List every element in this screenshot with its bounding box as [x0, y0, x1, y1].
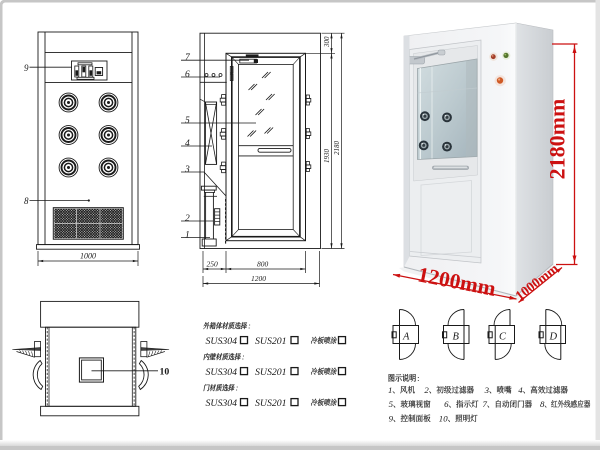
svg-text:8: 8: [24, 196, 29, 206]
svg-text:SUS201: SUS201: [255, 336, 287, 347]
svg-text:9: 9: [389, 413, 394, 423]
svg-text:SUS201: SUS201: [255, 398, 287, 409]
svg-text:4: 4: [185, 139, 190, 149]
svg-text:2180: 2180: [333, 141, 341, 156]
svg-text:5: 5: [185, 116, 190, 126]
svg-text:250: 250: [207, 260, 219, 269]
svg-text::: :: [236, 384, 239, 393]
svg-text:3: 3: [184, 165, 190, 175]
svg-text:1: 1: [388, 385, 392, 395]
svg-text:300: 300: [323, 36, 331, 48]
svg-text:6: 6: [444, 399, 449, 409]
svg-text:2: 2: [185, 214, 190, 224]
svg-text:SUS304: SUS304: [206, 336, 238, 347]
svg-text:B: B: [453, 332, 460, 343]
svg-text:2: 2: [424, 385, 429, 395]
svg-text:3: 3: [484, 385, 490, 395]
svg-text:10: 10: [439, 413, 448, 423]
svg-text:9: 9: [24, 63, 29, 73]
svg-text:D: D: [549, 332, 558, 343]
svg-text:SUS304: SUS304: [206, 398, 238, 409]
svg-text:SUS201: SUS201: [255, 367, 287, 378]
svg-text:1: 1: [185, 231, 190, 241]
svg-text:10: 10: [160, 367, 170, 378]
svg-text:SUS304: SUS304: [206, 367, 238, 378]
svg-text::: :: [242, 353, 245, 362]
svg-text:1200: 1200: [251, 274, 266, 283]
svg-text:2180mm: 2180mm: [545, 99, 570, 180]
svg-text:800: 800: [257, 260, 269, 269]
svg-text:7: 7: [483, 399, 488, 409]
svg-text:1930: 1930: [323, 149, 331, 164]
svg-text::: :: [417, 373, 419, 383]
svg-text:4: 4: [518, 385, 523, 395]
svg-text:6: 6: [185, 70, 190, 80]
svg-text:C: C: [499, 332, 507, 343]
svg-text:1000: 1000: [80, 252, 96, 261]
svg-text:8: 8: [540, 399, 545, 409]
svg-text:A: A: [402, 332, 410, 343]
svg-text:5: 5: [389, 399, 394, 409]
svg-text::: :: [248, 322, 251, 331]
